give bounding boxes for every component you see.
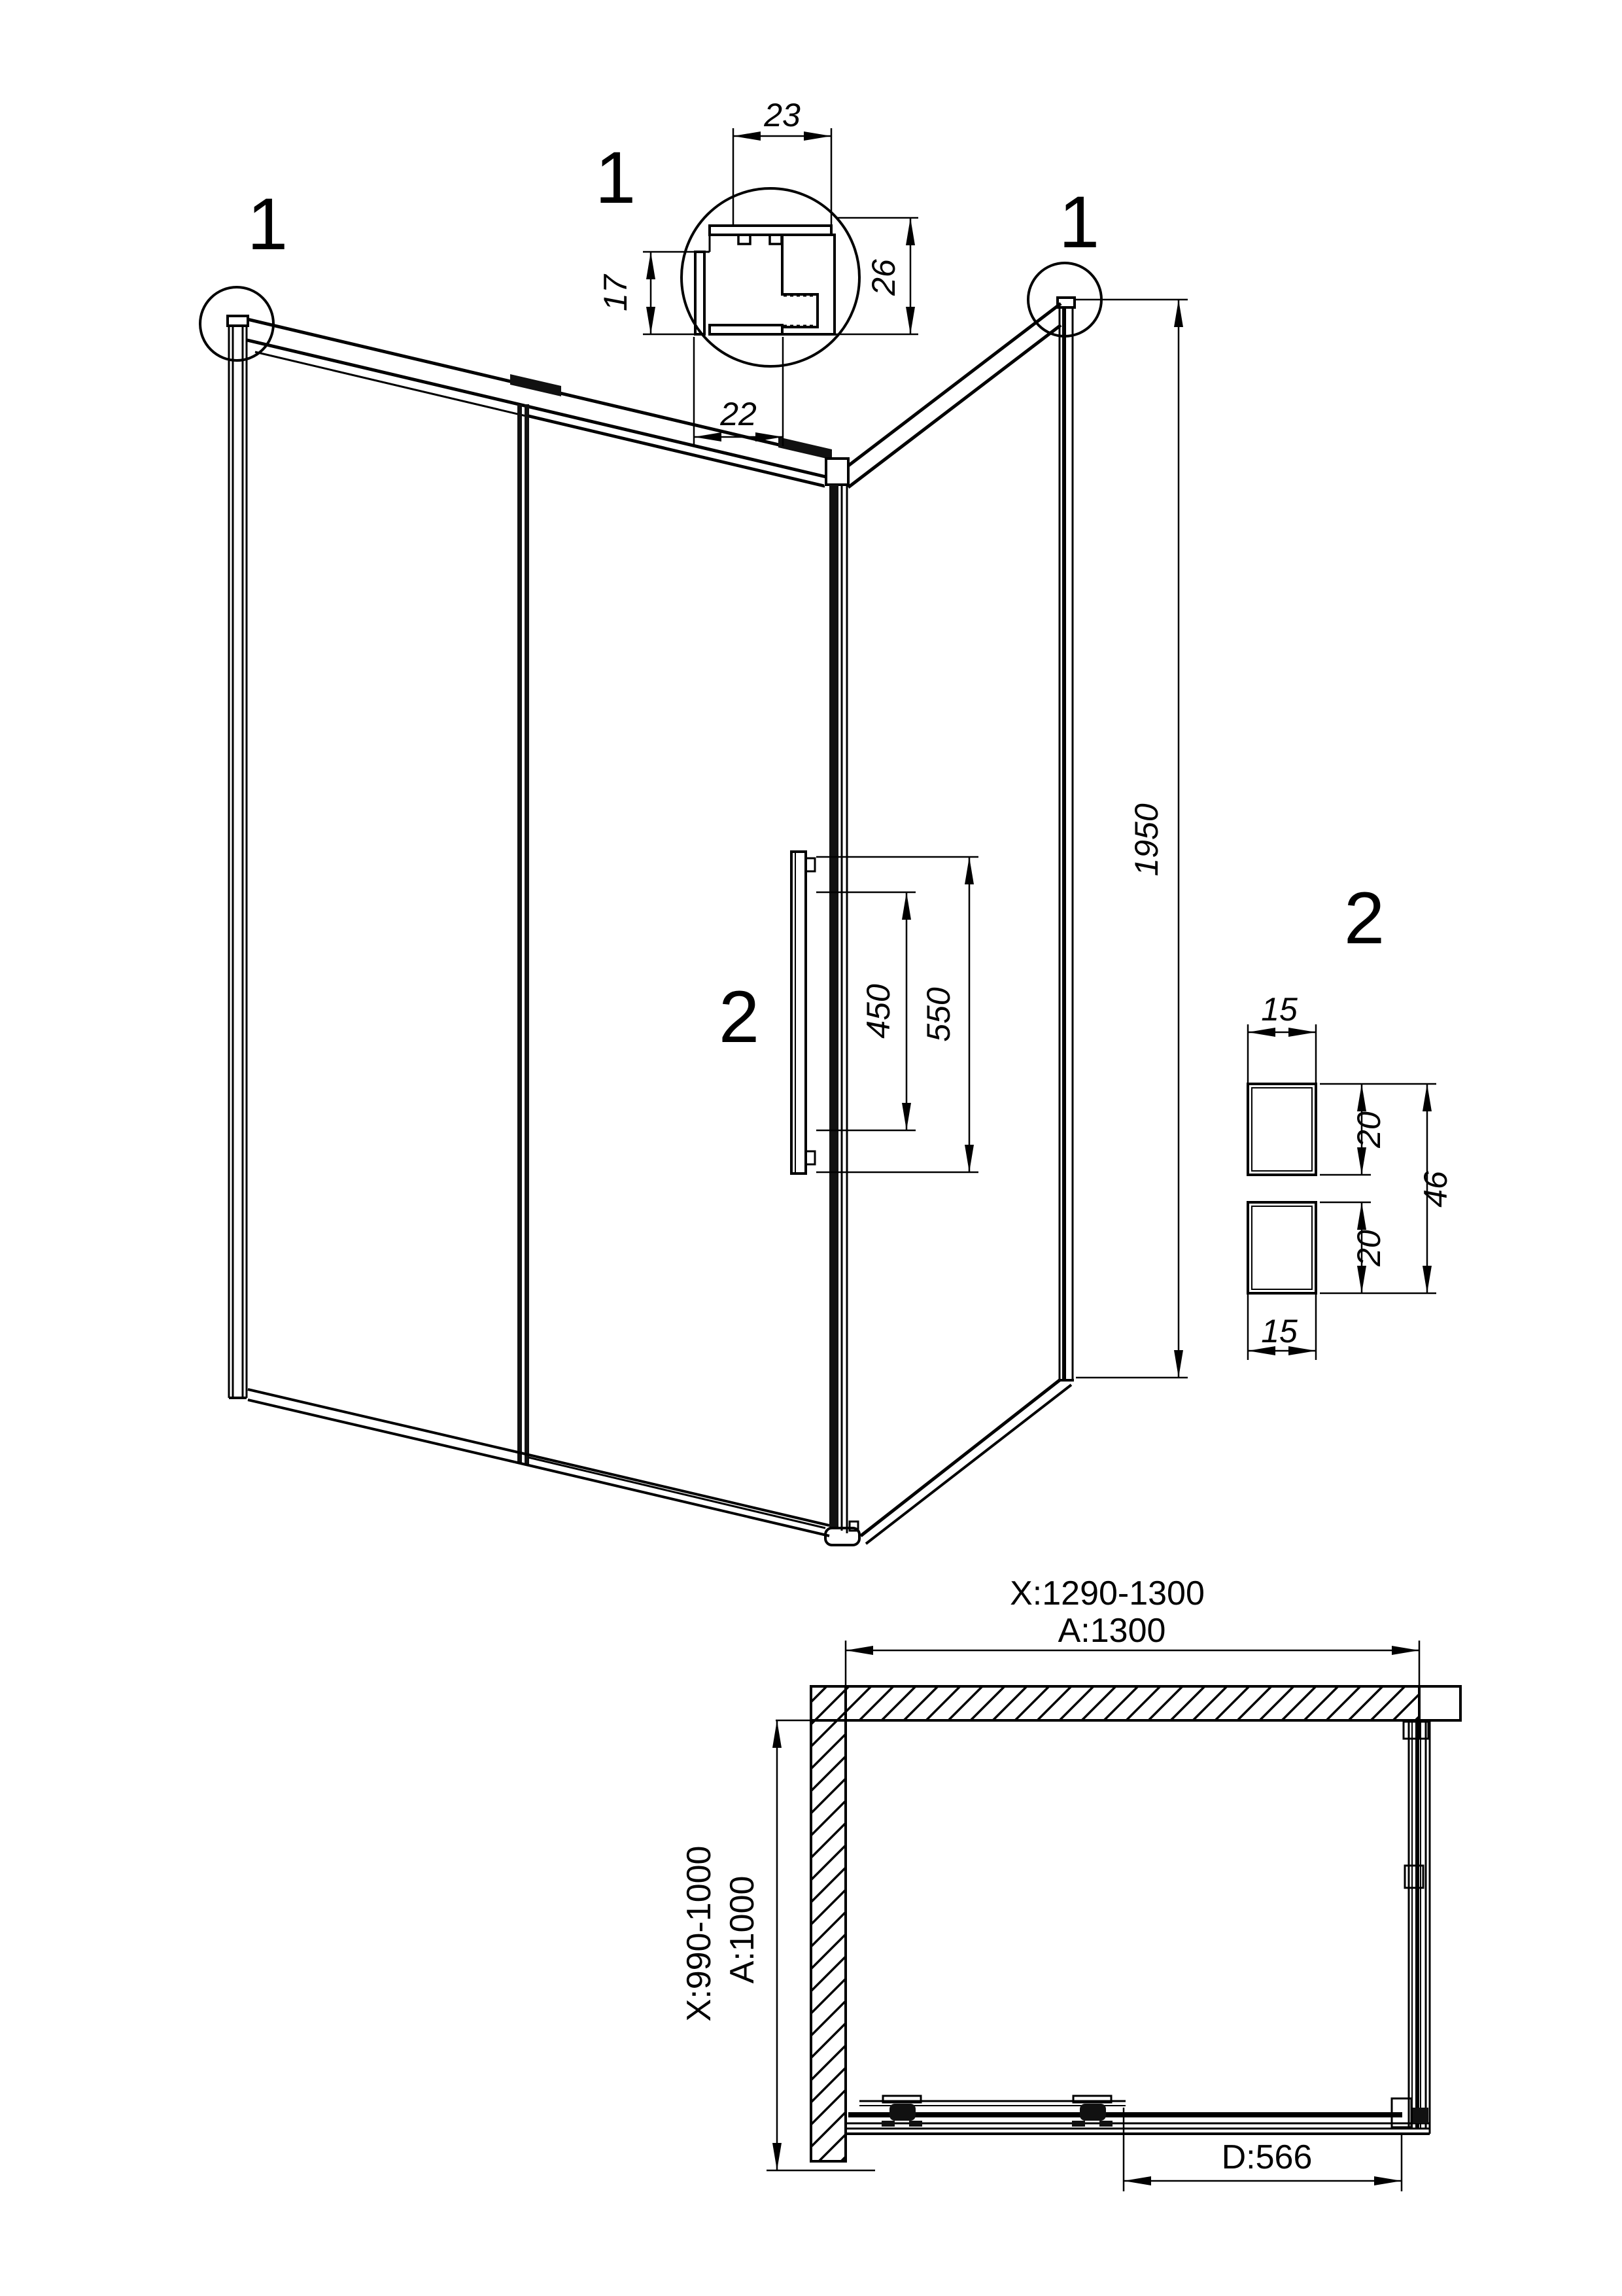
- dim-15-top: 15: [1248, 991, 1316, 1084]
- dim-20t-text: 20: [1351, 1111, 1387, 1149]
- corner-right-marker: 1: [1059, 181, 1099, 263]
- dim-handle: 450 550: [816, 857, 978, 1172]
- dim-height-1950: 1950: [1076, 300, 1188, 1378]
- door-handle: [791, 852, 815, 1174]
- dim-26-text: 26: [865, 259, 902, 296]
- corner-left-marker: 1: [247, 183, 288, 265]
- roller-bracket-right: [778, 437, 832, 460]
- handle-section-bottom-inner: [1252, 1206, 1312, 1289]
- door-width-text: D:566: [1222, 2138, 1313, 2176]
- handle-marker: 2: [719, 976, 759, 1058]
- handle-pad-top: [806, 858, 815, 871]
- handle-pad-bottom: [806, 1151, 815, 1164]
- detail-1-profile-section: 1 23 26: [595, 97, 918, 446]
- detail-2-handle-section: 2 15 20 20 46: [1248, 877, 1454, 1360]
- dim-46-text: 46: [1417, 1171, 1454, 1208]
- roller-bracket-left: [510, 374, 561, 396]
- dim-15b-text: 15: [1261, 1313, 1298, 1349]
- handle-section-bottom: [1248, 1202, 1316, 1293]
- detail1-callout: 1: [595, 137, 636, 218]
- dim-20b-text: 20: [1351, 1230, 1387, 1267]
- technical-drawing: 1 1 2 1950 450 550 1: [0, 0, 1622, 2296]
- dim-15-bottom: 15: [1248, 1293, 1316, 1360]
- handle-section-top: [1248, 1084, 1316, 1175]
- dim-20-bottom: 20: [1351, 1202, 1387, 1293]
- dim-550-text: 550: [920, 987, 957, 1042]
- wall-left: [811, 1686, 846, 2161]
- dim-20-top: 20: [1351, 1084, 1387, 1175]
- dim-profile-top: 23: [733, 97, 831, 226]
- plan-door-rail: [846, 2096, 1430, 2134]
- wall-top: [811, 1686, 1460, 1720]
- plan-view: X:1290-1300 A:1300 X:990-1000 A:1000: [680, 1574, 1460, 2191]
- corner-cube: [826, 459, 848, 485]
- dim-15t-text: 15: [1261, 991, 1298, 1028]
- plan-width: A:1300: [1058, 1612, 1166, 1650]
- plan-width-range: X:1290-1300: [1010, 1574, 1205, 1612]
- detail2-callout: 2: [1344, 877, 1385, 959]
- dim-height-text: 1950: [1128, 803, 1165, 876]
- detail1-circle: [682, 188, 859, 366]
- plan-depth-range: X:990-1000: [680, 1846, 718, 2022]
- door-glass-top: [528, 415, 824, 485]
- plan-side-panel: [1404, 1720, 1430, 2134]
- dim-door-width: D:566: [1124, 2108, 1402, 2191]
- profile-body: [695, 226, 835, 334]
- door-glass-bottom: [528, 1457, 825, 1528]
- plan-depth: A:1000: [723, 1876, 761, 1984]
- wall-end-cap: [1419, 1686, 1460, 1720]
- dim-46: 46: [1417, 1084, 1454, 1293]
- dim-profile-left: 17: [597, 252, 695, 334]
- door-trailing-stile: [517, 404, 529, 1464]
- dim-profile-bottom: 22: [694, 337, 783, 446]
- left-wall-profile: [228, 316, 248, 1398]
- side-panel: [848, 298, 1075, 1544]
- handle-section-top-inner: [1252, 1088, 1312, 1171]
- dim-22-text: 22: [719, 396, 757, 432]
- drawing-page: 1 1 2 1950 450 550 1: [0, 0, 1622, 2296]
- dim-17-text: 17: [597, 273, 634, 311]
- door-leading-stile: [829, 485, 838, 1529]
- dim-23-text: 23: [763, 97, 801, 133]
- bottom-track: [248, 1389, 829, 1536]
- dim-450-text: 450: [860, 984, 897, 1039]
- left-post-cap: [228, 316, 248, 326]
